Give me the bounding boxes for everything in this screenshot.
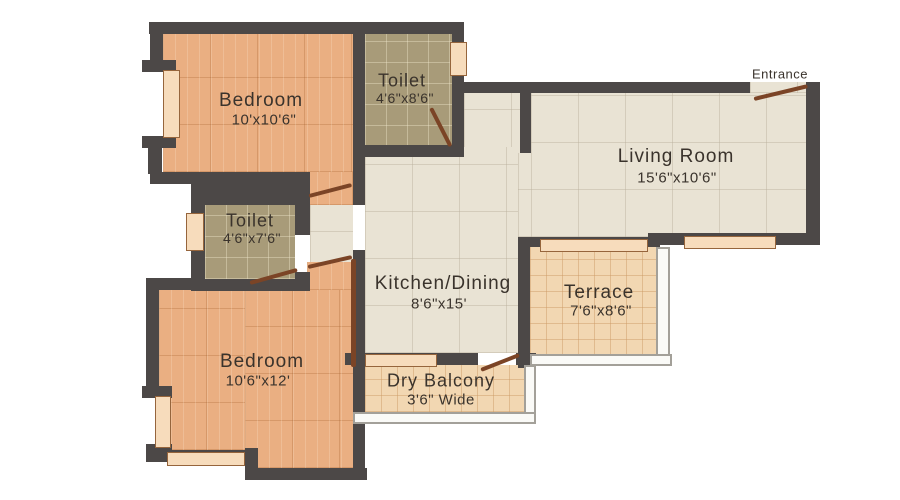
wall-living-right: [806, 82, 820, 245]
wall-bedroom-1-right: [353, 22, 365, 205]
wall-bedroom-1-left-lower: [148, 146, 162, 174]
wall-bedroom-2-left: [146, 290, 159, 390]
bedroom-2-dims: 10'6"x12': [226, 373, 291, 390]
wall-toilet-2-top: [191, 184, 310, 205]
wall-living-top: [452, 82, 750, 93]
kitchen-floor: [365, 147, 518, 353]
terrace-window-top: [540, 239, 648, 252]
bedroom-1-window-left: [163, 70, 180, 138]
toilet-2-label: Toilet: [226, 211, 274, 232]
terrace-rail-right: [656, 247, 670, 361]
terrace-label: Terrace: [564, 282, 634, 304]
wall-bedroom-2-bottom-right: [245, 468, 367, 480]
living-room-window-bottom: [684, 236, 776, 249]
bedroom-1-label: Bedroom: [219, 90, 303, 112]
toilet-1-dims: 4'6"x8'6": [376, 90, 434, 106]
toilet-2-window-left: [186, 213, 204, 251]
dry-balcony-rail-bottom: [353, 412, 536, 424]
terrace-rail-bottom: [530, 354, 672, 366]
toilet-1-window-right: [450, 42, 467, 76]
wall-toilet-2-right-upper: [295, 172, 310, 235]
bedroom-2-label: Bedroom: [220, 351, 304, 373]
bedroom-2-window-left: [155, 396, 171, 448]
wall-terrace-left: [518, 237, 530, 368]
toilet-2-dims: 4'6"x7'6": [223, 230, 281, 246]
wall-toilet-1-bottom: [353, 145, 453, 157]
living-room-label: Living Room: [618, 146, 735, 168]
bedroom-2-window-bottom: [167, 452, 245, 466]
kitchen-door-leaf: [351, 259, 356, 367]
floor-plan: Bedroom 10'x10'6" Toilet 4'6"x8'6" Livin…: [0, 0, 900, 500]
kitchen-floor-east-strip: [518, 153, 531, 237]
wall-toilet-2-right-lower: [295, 272, 310, 291]
living-room-dims: 15'6"x10'6": [637, 170, 716, 187]
wall-top-main: [149, 22, 464, 34]
wall-bedroom-1-bottom: [150, 172, 310, 184]
dry-balcony-window-top: [365, 354, 437, 367]
kitchen-label: Kitchen/Dining: [375, 273, 512, 295]
wall-stub-kitchen-living: [520, 93, 531, 153]
dry-balcony-label: Dry Balcony: [387, 371, 495, 392]
wall-bedroom-2-top-left: [146, 278, 193, 290]
terrace-dims: 7'6"x8'6": [570, 303, 632, 320]
toilet-1-label: Toilet: [378, 71, 426, 92]
wall-bedroom-1-left-upper: [150, 34, 163, 62]
bedroom-1-dims: 10'x10'6": [232, 112, 297, 129]
kitchen-dims: 8'6"x15': [411, 296, 467, 313]
dry-balcony-dims: 3'6" Wide: [407, 392, 475, 409]
entrance-label: Entrance: [752, 67, 808, 82]
